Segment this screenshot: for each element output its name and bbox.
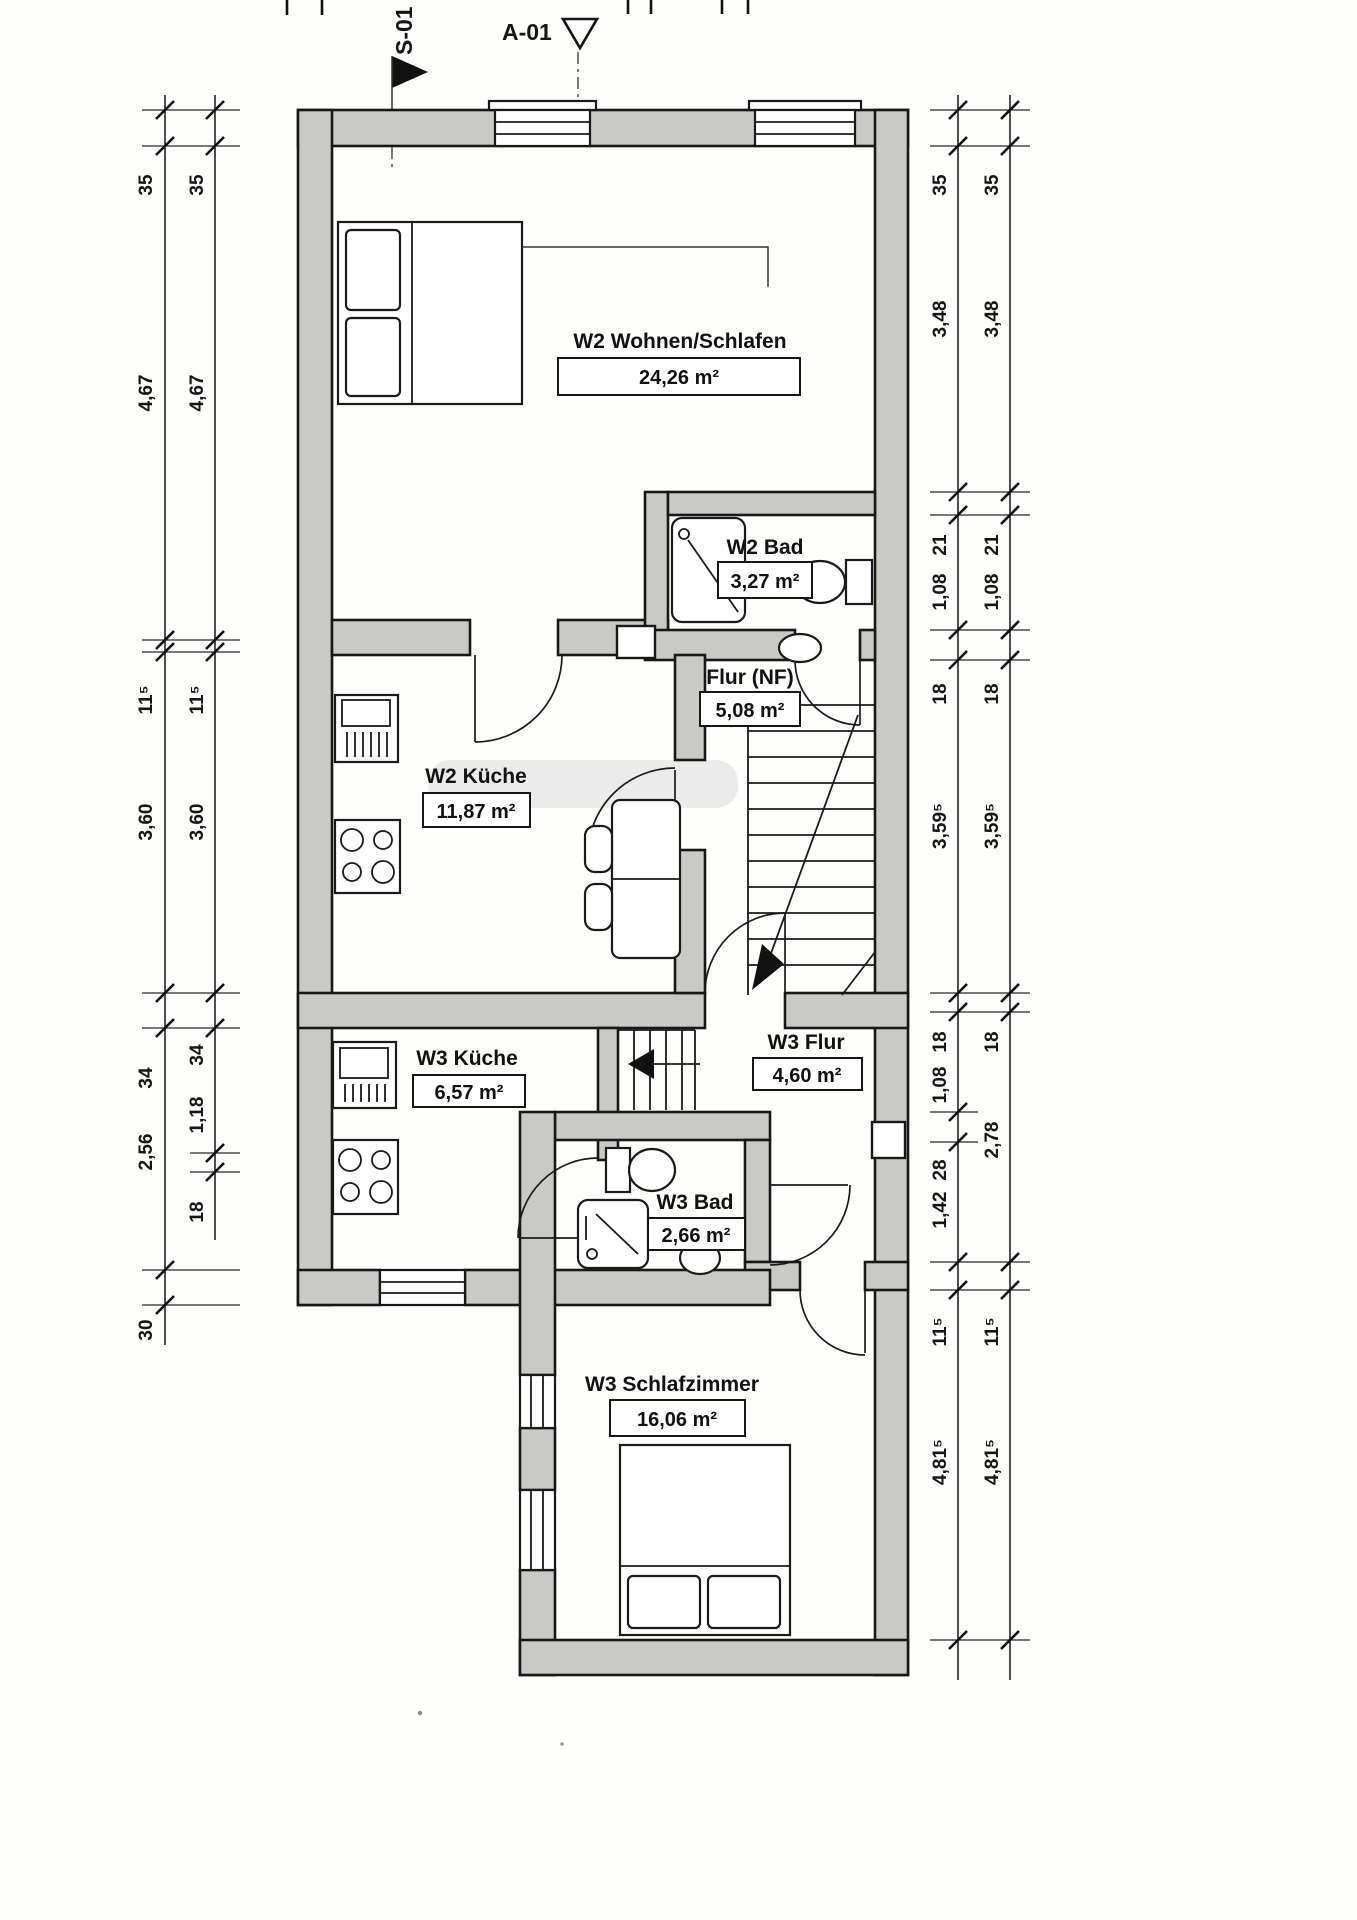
floor-plan-drawing: S-01 A-01 — [0, 0, 1357, 1920]
dimension-label: 3,59⁵ — [982, 803, 1003, 849]
dimension-label: 2,56 — [136, 1134, 157, 1171]
area-value: 4,60 m² — [773, 1065, 842, 1087]
room-name: W3 Küche — [416, 1047, 518, 1070]
wall-exterior-right — [875, 110, 908, 1675]
room-label-w2-wohnen: W2 Wohnen/Schlafen 24,26 m² — [558, 330, 800, 395]
stair-direction-arrow — [752, 944, 784, 990]
window-sill — [749, 101, 861, 110]
staircase-w3 — [618, 1030, 700, 1110]
room-name: W2 Bad — [726, 536, 803, 559]
floor-plan-page: S-01 A-01 — [0, 0, 1357, 1920]
dimension-label: 4,81⁵ — [930, 1439, 951, 1485]
dimension-label: 18 — [930, 683, 951, 704]
wall-wohnen-bottom — [332, 620, 470, 655]
dimension-label: 1,08 — [930, 1067, 951, 1104]
wall-w2-w3-separation — [785, 993, 908, 1028]
staircase-main — [748, 705, 875, 995]
door-ar-w3-flur — [770, 1185, 850, 1265]
dimension-label: 18 — [930, 1031, 951, 1052]
dimension-label: 34 — [187, 1044, 208, 1066]
area-value: 16,06 m² — [637, 1409, 717, 1431]
toilet-w3-icon — [606, 1148, 675, 1192]
room-label-w3-schlafzimmer: W3 Schlafzimmer 16,06 m² — [585, 1373, 759, 1436]
dimension-label: 1,18 — [187, 1097, 208, 1134]
door-arc-wohnen — [475, 655, 562, 742]
dimension-label: 18 — [982, 1031, 1003, 1052]
dimension-label: 11⁵ — [930, 1317, 951, 1346]
wall-left-section-bottom — [298, 1270, 380, 1305]
wall-w2-bad-top — [668, 492, 875, 515]
stove-w2-icon — [335, 820, 400, 893]
dimension-label: 30 — [136, 1319, 157, 1340]
room-name: W3 Schlafzimmer — [585, 1373, 759, 1396]
window-top-1 — [495, 110, 590, 146]
section-flag-icon — [392, 56, 428, 88]
wall-w3-bad-right — [745, 1140, 770, 1262]
wall-schlafzimmer-top — [865, 1262, 908, 1290]
dimension-label: 3,48 — [930, 301, 951, 338]
dimension-label: 4,67 — [187, 375, 208, 412]
sink-w2-icon — [779, 634, 821, 662]
door-arc-flur — [705, 913, 785, 993]
door-arc-w2-bad — [795, 660, 860, 725]
window-bottom-left — [380, 1270, 465, 1305]
window-sill — [489, 101, 596, 110]
dimension-label: 35 — [930, 174, 951, 196]
bed-w3-icon — [620, 1445, 790, 1635]
room-name: W3 Flur — [768, 1031, 845, 1054]
window-bedroom-2 — [520, 1490, 555, 1570]
room-label-flur-nf: Flur (NF) 5,08 m² — [700, 666, 800, 726]
wall-w2-bad-bottom — [860, 630, 875, 660]
detail-marker-label: A-01 — [502, 19, 552, 45]
dimension-label: 3,60 — [136, 804, 157, 841]
room-label-w3-bad: W3 Bad 2,66 m² — [648, 1191, 745, 1250]
stair-direction-arrow — [628, 1049, 654, 1079]
dimension-label: 1,08 — [930, 574, 951, 611]
door-pocket — [617, 626, 655, 658]
area-value: 24,26 m² — [639, 367, 719, 389]
sheet-fold-ticks — [287, 0, 748, 15]
room-label-w2-kueche: W2 Küche 11,87 m² — [423, 765, 530, 827]
stove-w3-icon — [333, 1140, 398, 1214]
door-arc-schlafzimmer — [800, 1290, 865, 1355]
dimension-label: 1,08 — [982, 574, 1003, 611]
dimension-label: 4,81⁵ — [982, 1439, 1003, 1485]
dimension-label: 1,42 — [930, 1192, 951, 1229]
dimension-label: 18 — [187, 1201, 208, 1222]
dimension-label: 35 — [136, 174, 157, 196]
dimension-label: 18 — [982, 683, 1003, 704]
wall-w2-w3-separation — [298, 993, 705, 1028]
dimension-label: 28 — [930, 1159, 951, 1180]
section-triangle-icon — [563, 19, 597, 48]
dimension-label: 35 — [982, 174, 1003, 196]
area-value: 11,87 m² — [437, 801, 516, 823]
section-marker-a01: A-01 — [502, 19, 597, 108]
room-label-w2-bad: W2 Bad 3,27 m² — [718, 536, 812, 598]
dimension-label: 4,67 — [136, 375, 157, 412]
dimension-chain-left: 35 4,67 11⁵ 3,60 34 2,56 30 35 4,67 11⁵ … — [136, 95, 240, 1345]
section-marker-label: S-01 — [391, 6, 417, 55]
dimension-label: 3,60 — [187, 804, 208, 841]
window-top-2 — [755, 110, 855, 146]
dimension-label: 11⁵ — [982, 1317, 1003, 1346]
room-label-w3-kueche: W3 Küche 6,57 m² — [413, 1047, 525, 1107]
dimension-label: 3,59⁵ — [930, 803, 951, 849]
wall-niche — [872, 1122, 905, 1158]
scan-speck — [418, 1711, 422, 1715]
wall-schlafzimmer-left — [520, 1112, 555, 1375]
dimension-chain-right: 35 3,48 21 1,08 18 3,59⁵ 18 1,08 28 1,42… — [930, 95, 1030, 1680]
wall-schlafzimmer-left — [520, 1428, 555, 1490]
area-value: 6,57 m² — [435, 1082, 504, 1104]
dimension-label: 21 — [930, 534, 951, 556]
area-value: 5,08 m² — [716, 700, 785, 722]
wall-w2-bad-bottom — [645, 630, 795, 660]
wall-exterior-bottom — [520, 1640, 908, 1675]
wall-left-section-bottom — [465, 1270, 770, 1305]
scan-speck — [560, 1742, 564, 1746]
dimension-label: 34 — [136, 1067, 157, 1089]
wall-w3-bad-top — [555, 1112, 770, 1140]
window-bedroom-1 — [520, 1375, 555, 1428]
shower-w3-icon — [578, 1200, 648, 1268]
room-name: W2 Küche — [425, 765, 527, 788]
furniture-line — [522, 247, 768, 287]
dimension-label: 2,78 — [982, 1122, 1003, 1159]
dimension-label: 35 — [187, 174, 208, 196]
dimension-label: 3,48 — [982, 301, 1003, 338]
dimension-label: 21 — [982, 534, 1003, 556]
dining-table-icon — [585, 800, 680, 958]
area-value: 3,27 m² — [731, 571, 800, 593]
wall-exterior-left — [298, 110, 332, 1305]
dimension-label: 11⁵ — [187, 685, 208, 714]
fridge-w2-icon — [335, 695, 398, 762]
room-name: W2 Wohnen/Schlafen — [573, 330, 786, 353]
room-label-w3-flur: W3 Flur 4,60 m² — [753, 1031, 862, 1090]
area-value: 2,66 m² — [662, 1225, 731, 1247]
kitchen-unit-w3-icon — [333, 1042, 396, 1108]
dimension-label: 11⁵ — [136, 685, 157, 714]
room-name: W3 Bad — [656, 1191, 733, 1214]
room-name: Flur (NF) — [706, 666, 793, 689]
